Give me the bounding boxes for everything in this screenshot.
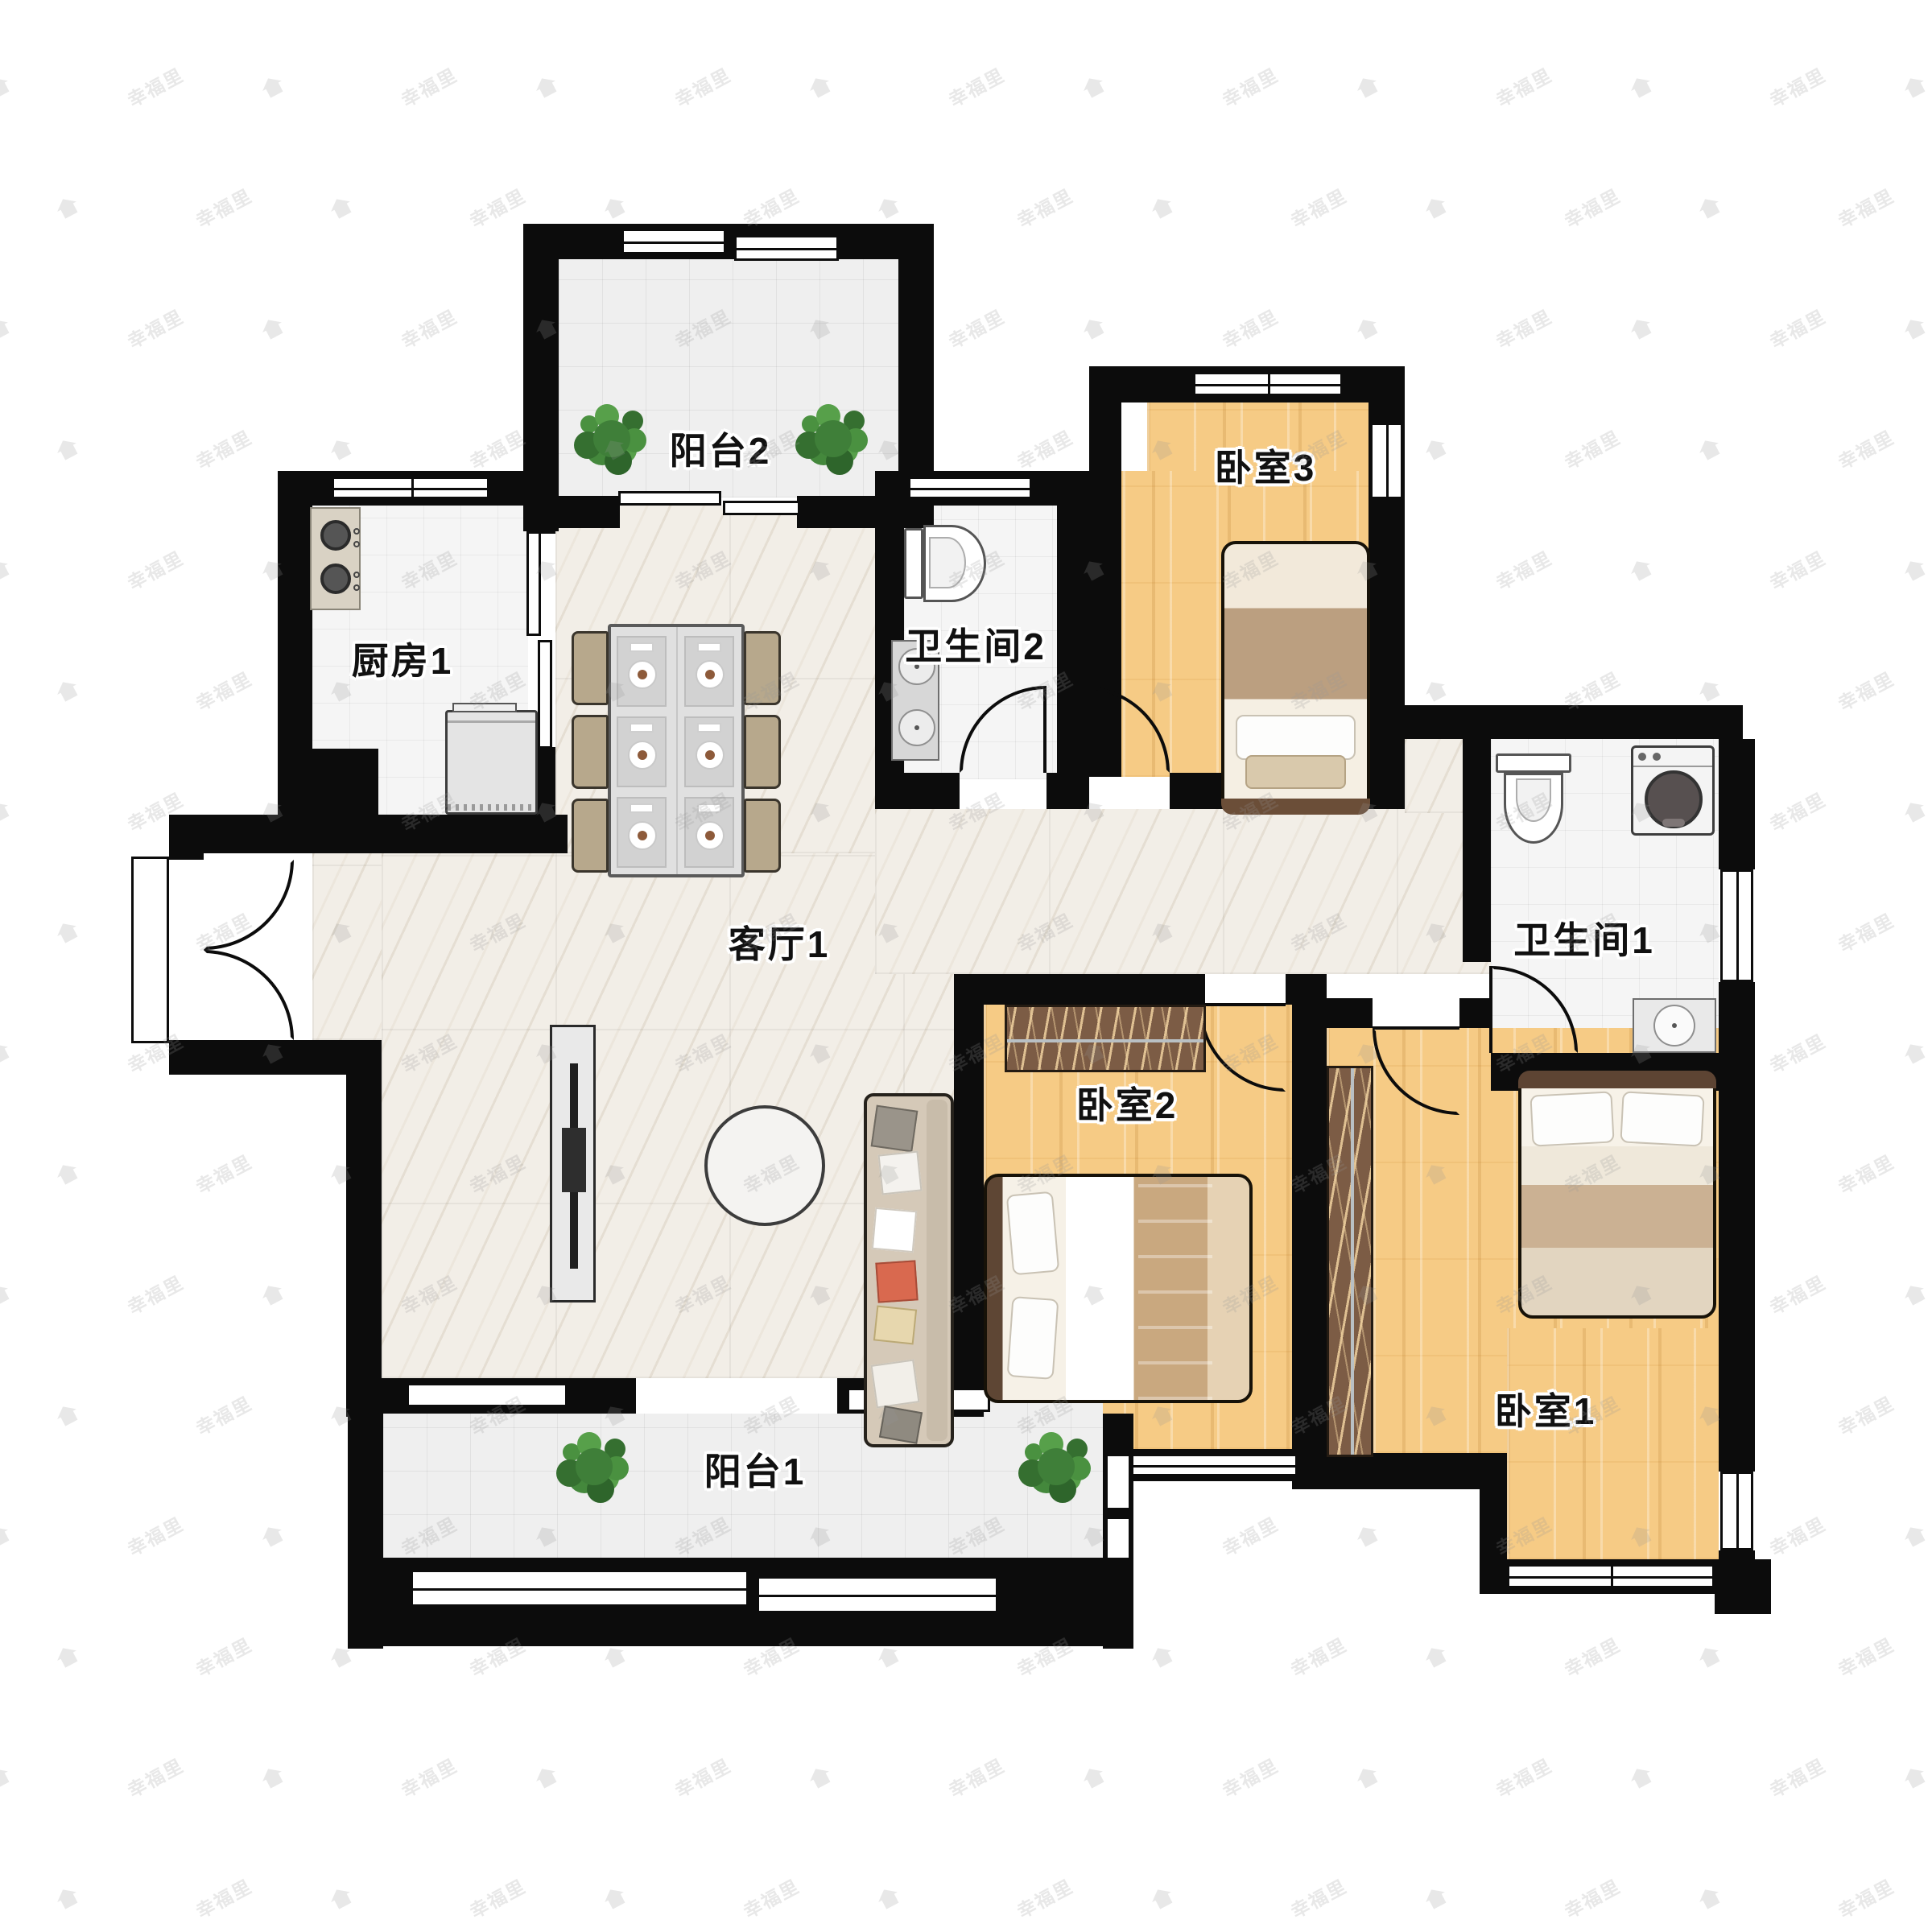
door-leaf xyxy=(1199,1003,1286,1006)
watermark-text: 幸福里 xyxy=(190,1388,256,1440)
watermark-house-icon xyxy=(1901,315,1929,341)
watermark-text: 幸福里 xyxy=(943,60,1009,112)
watermark-house-icon xyxy=(1695,194,1724,221)
watermark-house-icon xyxy=(1353,315,1381,341)
window xyxy=(1720,1472,1753,1550)
door-leaf xyxy=(1043,686,1046,773)
watermark-house-icon xyxy=(0,798,13,824)
entry-door-arc xyxy=(204,950,294,1040)
watermark-text: 幸福里 xyxy=(1285,1871,1351,1923)
watermark-house-icon xyxy=(1353,1522,1381,1549)
watermark-text: 幸福里 xyxy=(1832,1629,1898,1682)
wall xyxy=(346,1040,382,1417)
watermark-text: 幸福里 xyxy=(122,1509,188,1561)
room-label-kitchen: 厨房1 xyxy=(352,632,454,685)
floor-plan: 阳台2 厨房1 卫生间2 卧室3 客厅1 卫生间1 卧室2 卧室1 阳台1 幸福… xyxy=(0,0,1932,1932)
watermark-house-icon xyxy=(0,1281,13,1307)
window xyxy=(757,1576,998,1613)
watermark-house-icon xyxy=(532,1764,560,1790)
watermark-text: 幸福里 xyxy=(1832,180,1898,233)
watermark-house-icon xyxy=(258,315,287,341)
wall xyxy=(528,471,555,534)
sliding-door xyxy=(538,640,552,749)
window xyxy=(734,235,839,261)
watermark-text: 幸福里 xyxy=(395,60,461,112)
watermark-text: 幸福里 xyxy=(464,1871,530,1923)
watermark-house-icon xyxy=(1148,1643,1176,1670)
watermark-house-icon xyxy=(1422,1643,1450,1670)
watermark-text: 幸福里 xyxy=(1490,1750,1556,1802)
watermark-text: 幸福里 xyxy=(1558,422,1624,474)
watermark-house-icon xyxy=(874,1643,902,1670)
room-label-balcony2: 阳台2 xyxy=(670,422,772,475)
wall xyxy=(1719,1550,1755,1594)
toilet xyxy=(904,528,923,599)
wall xyxy=(1405,705,1743,739)
watermark-text: 幸福里 xyxy=(1216,1750,1282,1802)
plant xyxy=(1038,1448,1075,1485)
watermark-house-icon xyxy=(1148,194,1176,221)
place-setting xyxy=(684,716,734,787)
room-label-bathroom1: 卫生间1 xyxy=(1513,911,1655,964)
wall xyxy=(1459,998,1491,1028)
watermark-house-icon xyxy=(601,194,629,221)
watermark-house-icon xyxy=(601,1885,629,1911)
watermark-house-icon xyxy=(1148,1885,1176,1911)
window xyxy=(1127,1454,1298,1476)
watermark-text: 幸福里 xyxy=(943,301,1009,353)
window xyxy=(411,1570,749,1607)
watermark-house-icon xyxy=(1901,798,1929,824)
watermark-house-icon xyxy=(258,73,287,100)
sliding-door xyxy=(407,1383,568,1407)
dining-chair xyxy=(572,799,609,873)
room-label-living: 客厅1 xyxy=(729,915,831,968)
watermark-house-icon xyxy=(0,556,13,583)
watermark-house-icon xyxy=(53,919,81,945)
fridge xyxy=(445,710,538,815)
watermark-house-icon xyxy=(0,315,13,341)
watermark-text: 幸福里 xyxy=(122,1267,188,1319)
watermark-text: 幸福里 xyxy=(1011,1871,1077,1923)
watermark-house-icon xyxy=(532,73,560,100)
entry-door-arc xyxy=(204,860,294,950)
place-setting xyxy=(684,636,734,707)
wall xyxy=(169,815,568,853)
watermark-text: 幸福里 xyxy=(1216,1509,1282,1561)
stove xyxy=(310,507,361,610)
dining-chair xyxy=(744,799,781,873)
wardrobe xyxy=(1005,1005,1206,1072)
watermark-text: 幸福里 xyxy=(1764,1026,1830,1078)
watermark-text: 幸福里 xyxy=(1558,1629,1624,1682)
watermark-house-icon xyxy=(258,1522,287,1549)
watermark-house-icon xyxy=(0,1522,13,1549)
watermark-text: 幸福里 xyxy=(737,1871,803,1923)
window xyxy=(1720,869,1753,982)
watermark-text: 幸福里 xyxy=(190,1146,256,1199)
place-setting xyxy=(617,636,667,707)
window xyxy=(1193,372,1343,396)
watermark-text: 幸福里 xyxy=(1764,1509,1830,1561)
watermark-house-icon xyxy=(1627,73,1655,100)
wall xyxy=(1046,773,1089,809)
watermark-house-icon xyxy=(874,1885,902,1911)
watermark-text: 幸福里 xyxy=(1764,1267,1830,1319)
window xyxy=(1370,423,1403,499)
watermark-text: 幸福里 xyxy=(1285,180,1351,233)
wardrobe xyxy=(1327,1066,1373,1457)
dining-chair xyxy=(572,715,609,789)
watermark-house-icon xyxy=(1627,315,1655,341)
watermark-text: 幸福里 xyxy=(190,1629,256,1682)
watermark-text: 幸福里 xyxy=(122,543,188,595)
bed xyxy=(984,1174,1253,1403)
watermark-house-icon xyxy=(1080,73,1108,100)
watermark-text: 幸福里 xyxy=(1490,543,1556,595)
watermark-text: 幸福里 xyxy=(1490,60,1556,112)
bed xyxy=(1518,1071,1716,1319)
wall xyxy=(1719,739,1755,869)
room-label-bedroom2: 卧室2 xyxy=(1076,1076,1179,1129)
window xyxy=(908,477,1032,499)
bathroom-sink xyxy=(1633,998,1716,1053)
watermark-text: 幸福里 xyxy=(669,60,735,112)
door-leaf xyxy=(1083,686,1086,773)
wall xyxy=(875,773,960,809)
watermark-house-icon xyxy=(0,1039,13,1066)
watermark-house-icon xyxy=(1901,1039,1929,1066)
watermark-house-icon xyxy=(1422,1885,1450,1911)
watermark-text: 幸福里 xyxy=(1490,301,1556,353)
window xyxy=(621,229,726,254)
watermark-house-icon xyxy=(1422,194,1450,221)
wall xyxy=(1327,1453,1507,1489)
window xyxy=(332,477,489,499)
watermark-house-icon xyxy=(0,1764,13,1790)
watermark-house-icon xyxy=(53,436,81,462)
watermark-text: 幸福里 xyxy=(395,301,461,353)
watermark-text: 幸福里 xyxy=(1764,784,1830,836)
bed xyxy=(1221,541,1370,815)
watermark-house-icon xyxy=(1901,1281,1929,1307)
sliding-door xyxy=(526,531,541,636)
entry-threshold xyxy=(131,857,169,1043)
watermark-text: 幸福里 xyxy=(1216,60,1282,112)
watermark-house-icon xyxy=(806,1764,834,1790)
place-setting xyxy=(617,716,667,787)
toilet xyxy=(1496,753,1571,773)
watermark-house-icon xyxy=(0,73,13,100)
watermark-text: 幸福里 xyxy=(122,60,188,112)
sliding-door xyxy=(723,501,800,515)
watermark-house-icon xyxy=(806,73,834,100)
corridor-floor-nook xyxy=(1405,739,1463,813)
watermark-text: 幸福里 xyxy=(1764,301,1830,353)
watermark-house-icon xyxy=(53,677,81,704)
place-setting xyxy=(617,797,667,868)
watermark-text: 幸福里 xyxy=(190,663,256,716)
watermark-house-icon xyxy=(1695,1885,1724,1911)
watermark-house-icon xyxy=(1627,1764,1655,1790)
watermark-house-icon xyxy=(1627,556,1655,583)
watermark-text: 幸福里 xyxy=(1832,422,1898,474)
room-label-balcony1: 阳台1 xyxy=(704,1443,807,1496)
watermark-text: 幸福里 xyxy=(464,422,530,474)
watermark-text: 幸福里 xyxy=(1832,1871,1898,1923)
watermark-text: 幸福里 xyxy=(190,180,256,233)
watermark-house-icon xyxy=(53,1160,81,1187)
watermark-house-icon xyxy=(258,1281,287,1307)
watermark-text: 幸福里 xyxy=(190,1871,256,1923)
watermark-text: 幸福里 xyxy=(1285,1629,1351,1682)
watermark-house-icon xyxy=(601,1643,629,1670)
room-label-bathroom2: 卫生间2 xyxy=(905,617,1046,671)
plant xyxy=(593,420,630,457)
window xyxy=(1507,1564,1715,1588)
watermark-text: 幸福里 xyxy=(122,1750,188,1802)
wall xyxy=(523,224,934,259)
watermark-house-icon xyxy=(327,436,355,462)
dining-chair xyxy=(744,715,781,789)
wall xyxy=(1292,974,1327,1489)
watermark-house-icon xyxy=(327,1885,355,1911)
bedroom1-floor xyxy=(1507,1328,1719,1559)
room-label-bedroom3: 卧室3 xyxy=(1215,439,1317,492)
watermark-text: 幸福里 xyxy=(1011,422,1077,474)
watermark-house-icon xyxy=(1422,677,1450,704)
watermark-text: 幸福里 xyxy=(1764,1750,1830,1802)
watermark-text: 幸福里 xyxy=(1764,543,1830,595)
watermark-house-icon xyxy=(1901,73,1929,100)
wall xyxy=(954,974,1205,1005)
watermark-text: 幸福里 xyxy=(1832,1146,1898,1199)
window xyxy=(1105,1454,1131,1510)
wall xyxy=(1480,1489,1507,1562)
wall xyxy=(954,974,984,1417)
watermark-house-icon xyxy=(1080,1764,1108,1790)
tv-cabinet xyxy=(550,1025,596,1302)
place-setting xyxy=(684,797,734,868)
watermark-house-icon xyxy=(1080,315,1108,341)
watermark-house-icon xyxy=(1422,436,1450,462)
plant xyxy=(815,420,852,457)
wall xyxy=(1463,739,1491,962)
watermark-text: 幸福里 xyxy=(1216,301,1282,353)
sofa xyxy=(864,1093,954,1447)
watermark-text: 幸福里 xyxy=(190,422,256,474)
watermark-house-icon xyxy=(1695,677,1724,704)
watermark-text: 幸福里 xyxy=(669,1750,735,1802)
washing-machine xyxy=(1631,745,1715,836)
watermark-text: 幸福里 xyxy=(1558,180,1624,233)
watermark-house-icon xyxy=(1695,436,1724,462)
watermark-text: 幸福里 xyxy=(943,1750,1009,1802)
watermark-house-icon xyxy=(53,1885,81,1911)
wall xyxy=(169,833,204,860)
coffee-table xyxy=(704,1105,825,1226)
watermark-house-icon xyxy=(1695,1643,1724,1670)
watermark-text: 幸福里 xyxy=(1558,1871,1624,1923)
watermark-text: 幸福里 xyxy=(1832,663,1898,716)
watermark-house-icon xyxy=(1353,73,1381,100)
sliding-door xyxy=(618,491,721,506)
watermark-text: 幸福里 xyxy=(1832,905,1898,957)
watermark-text: 幸福里 xyxy=(1832,1388,1898,1440)
wall xyxy=(898,224,934,496)
watermark-house-icon xyxy=(327,194,355,221)
watermark-text: 幸福里 xyxy=(1764,60,1830,112)
watermark-house-icon xyxy=(258,1764,287,1790)
watermark-house-icon xyxy=(53,1643,81,1670)
watermark-house-icon xyxy=(1901,1522,1929,1549)
watermark-text: 幸福里 xyxy=(122,301,188,353)
door-leaf xyxy=(1373,1026,1459,1030)
watermark-house-icon xyxy=(53,194,81,221)
watermark-house-icon xyxy=(1901,1764,1929,1790)
watermark-text: 幸福里 xyxy=(1011,180,1077,233)
watermark-house-icon xyxy=(874,194,902,221)
corridor-floor xyxy=(875,809,1491,974)
dining-chair xyxy=(744,631,781,705)
dining-chair xyxy=(572,631,609,705)
wall xyxy=(1719,1091,1755,1472)
watermark-house-icon xyxy=(53,1402,81,1428)
watermark-house-icon xyxy=(1901,556,1929,583)
plant xyxy=(576,1448,613,1485)
living-floor-strip xyxy=(312,853,382,1040)
watermark-text: 幸福里 xyxy=(395,1750,461,1802)
room-label-bedroom1: 卧室1 xyxy=(1495,1382,1597,1435)
watermark-house-icon xyxy=(1353,1764,1381,1790)
watermark-text: 幸福里 xyxy=(464,180,530,233)
